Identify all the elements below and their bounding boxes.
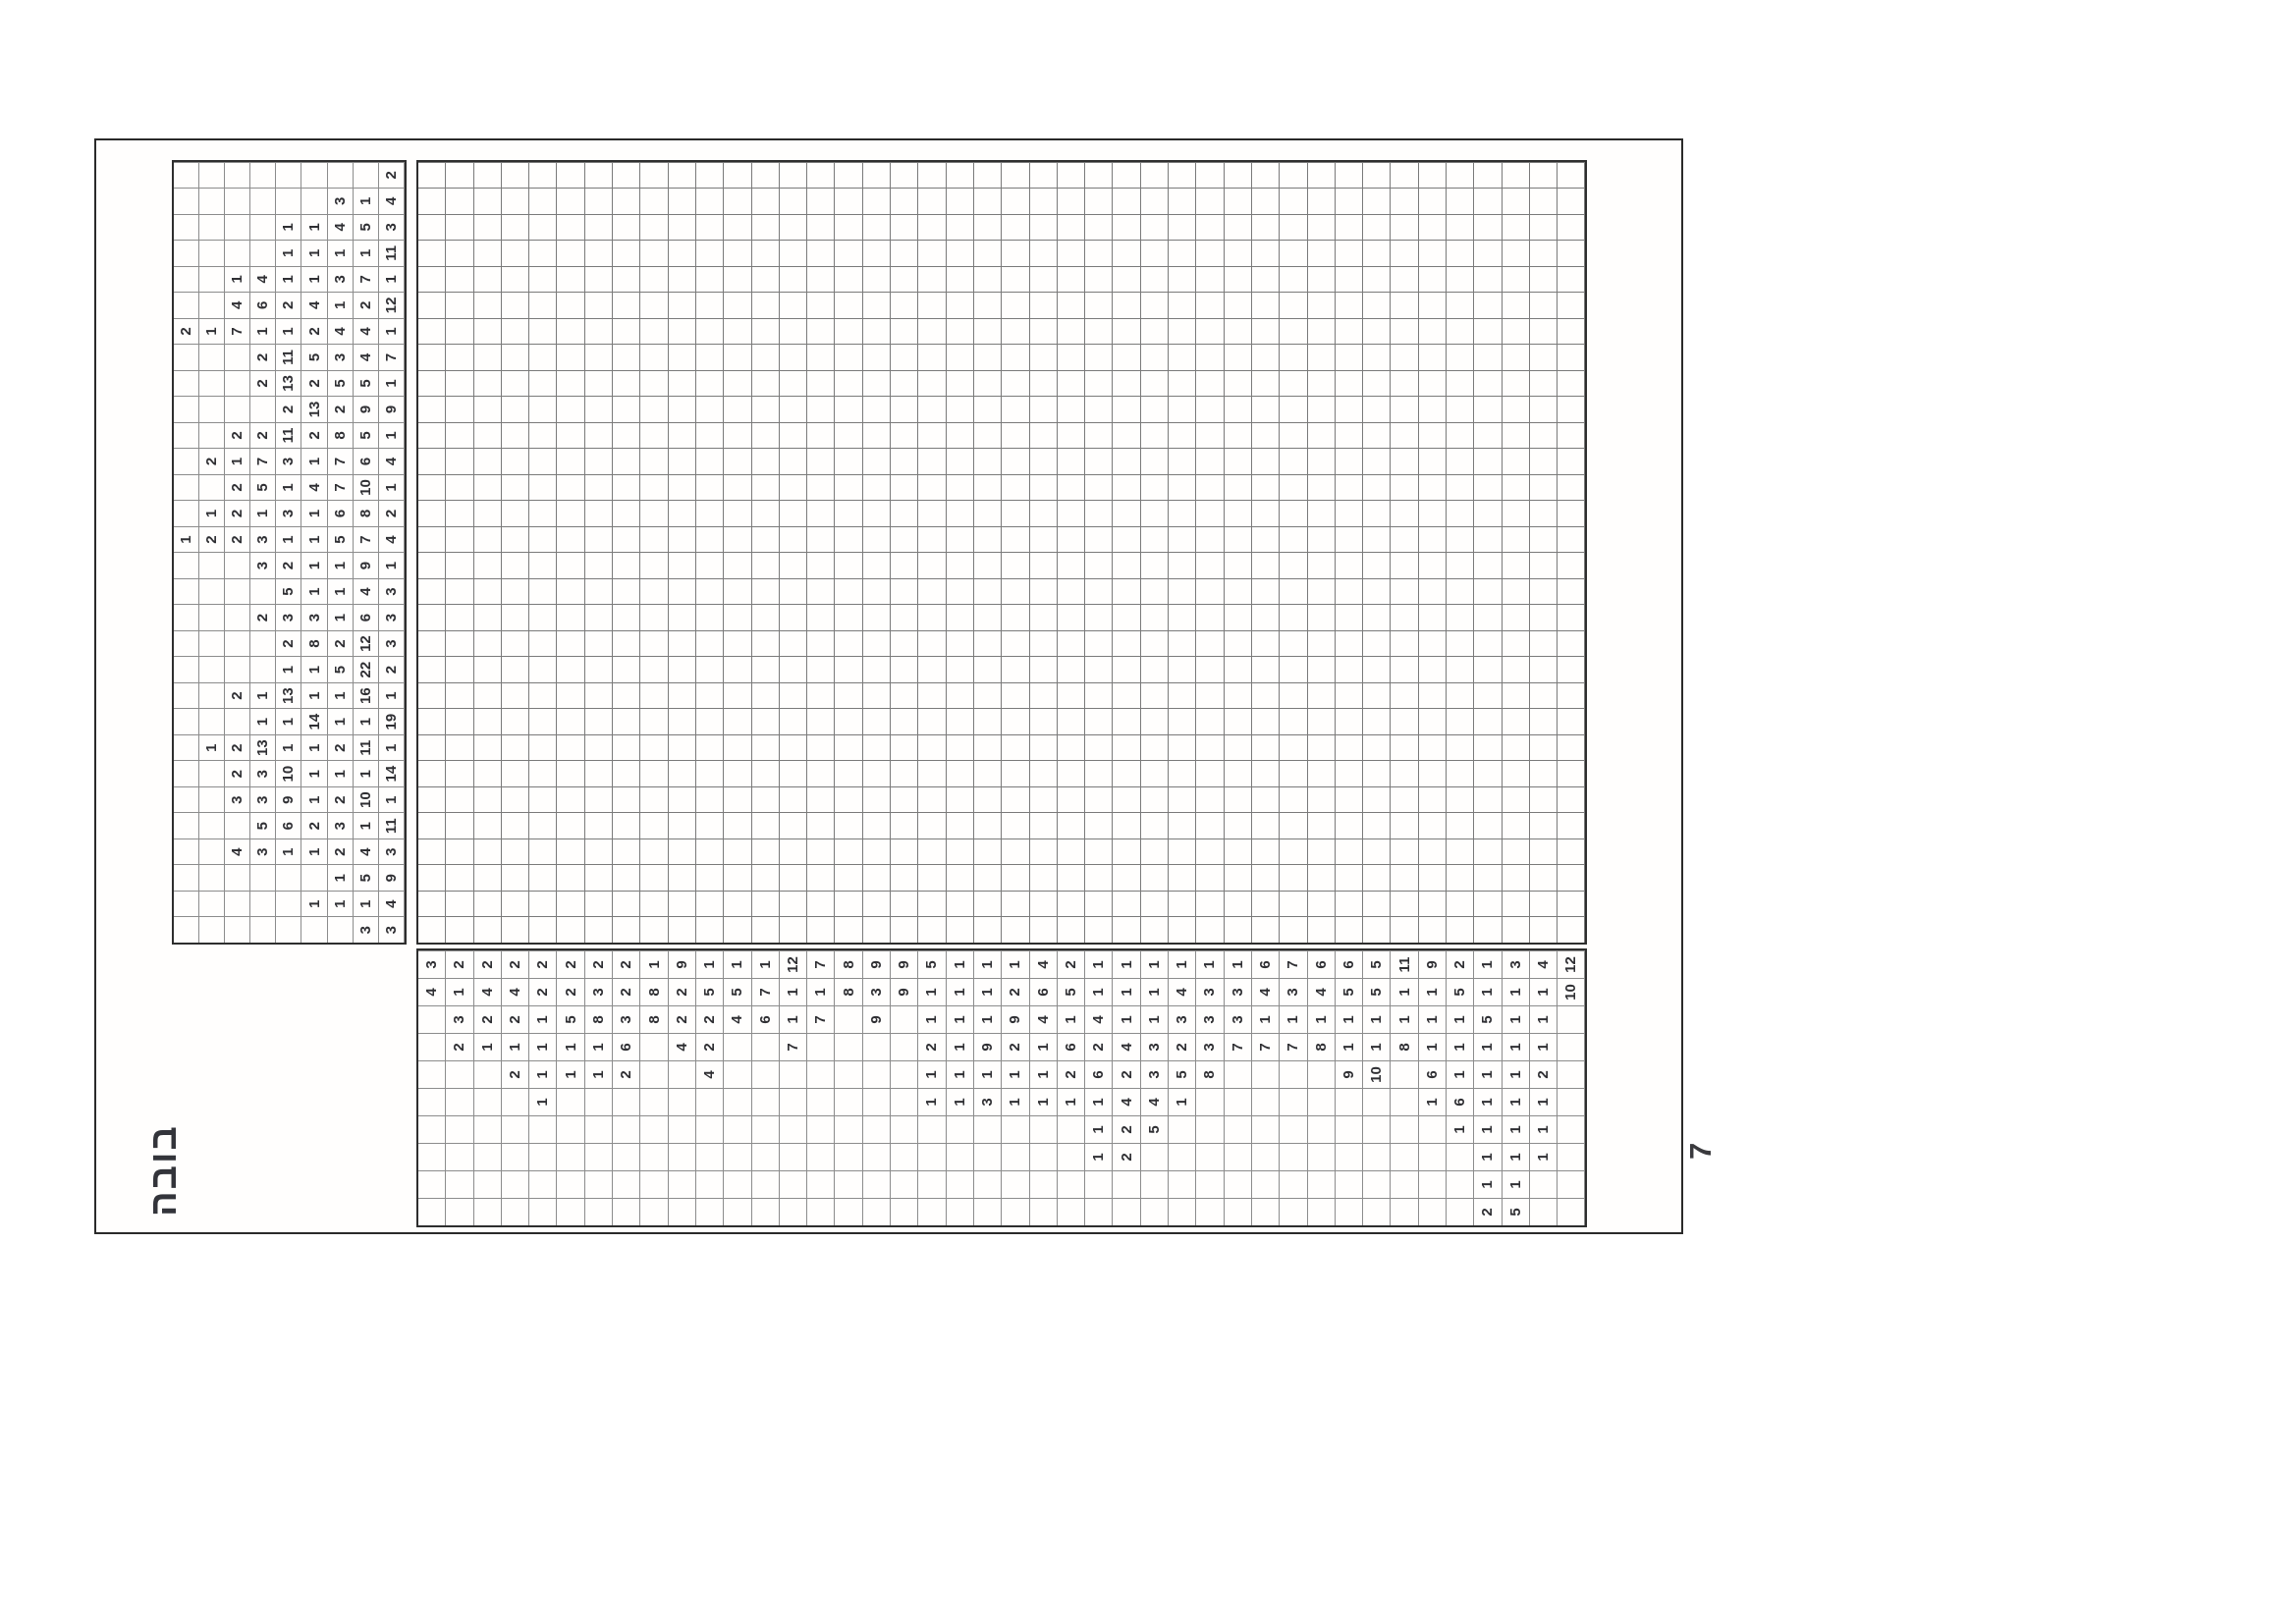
grid-cell[interactable] xyxy=(974,214,1002,241)
grid-cell[interactable] xyxy=(557,891,584,917)
grid-cell[interactable] xyxy=(502,734,529,761)
grid-cell[interactable] xyxy=(1308,839,1336,865)
grid-cell[interactable] xyxy=(780,292,807,318)
grid-cell[interactable] xyxy=(752,578,780,605)
grid-cell[interactable] xyxy=(418,318,446,345)
grid-cell[interactable] xyxy=(918,240,946,266)
grid-cell[interactable] xyxy=(1058,786,1085,813)
grid-cell[interactable] xyxy=(696,656,724,682)
grid-cell[interactable] xyxy=(1225,500,1252,526)
grid-cell[interactable] xyxy=(1085,240,1113,266)
grid-cell[interactable] xyxy=(891,318,918,345)
grid-cell[interactable] xyxy=(724,682,751,709)
grid-cell[interactable] xyxy=(807,656,835,682)
grid-cell[interactable] xyxy=(1280,370,1307,397)
grid-cell[interactable] xyxy=(863,370,891,397)
grid-cell[interactable] xyxy=(918,656,946,682)
grid-cell[interactable] xyxy=(974,839,1002,865)
grid-cell[interactable] xyxy=(446,474,473,501)
grid-cell[interactable] xyxy=(974,422,1002,449)
grid-cell[interactable] xyxy=(1280,786,1307,813)
grid-cell[interactable] xyxy=(1419,448,1447,474)
grid-cell[interactable] xyxy=(640,891,668,917)
grid-cell[interactable] xyxy=(1002,552,1029,578)
grid-cell[interactable] xyxy=(529,240,557,266)
grid-cell[interactable] xyxy=(1391,891,1418,917)
grid-cell[interactable] xyxy=(918,292,946,318)
grid-cell[interactable] xyxy=(557,864,584,891)
grid-cell[interactable] xyxy=(1085,656,1113,682)
grid-cell[interactable] xyxy=(1308,292,1336,318)
grid-cell[interactable] xyxy=(1058,240,1085,266)
grid-cell[interactable] xyxy=(1280,812,1307,839)
grid-cell[interactable] xyxy=(613,864,640,891)
grid-cell[interactable] xyxy=(585,396,613,422)
grid-cell[interactable] xyxy=(1113,812,1140,839)
grid-cell[interactable] xyxy=(1391,839,1418,865)
grid-cell[interactable] xyxy=(1530,552,1558,578)
grid-cell[interactable] xyxy=(585,448,613,474)
grid-cell[interactable] xyxy=(529,682,557,709)
grid-cell[interactable] xyxy=(1419,786,1447,813)
grid-cell[interactable] xyxy=(529,188,557,214)
grid-cell[interactable] xyxy=(502,812,529,839)
grid-cell[interactable] xyxy=(974,916,1002,943)
grid-cell[interactable] xyxy=(1169,552,1196,578)
grid-cell[interactable] xyxy=(1225,734,1252,761)
grid-cell[interactable] xyxy=(1113,891,1140,917)
grid-cell[interactable] xyxy=(1196,188,1224,214)
grid-cell[interactable] xyxy=(724,839,751,865)
grid-cell[interactable] xyxy=(974,292,1002,318)
grid-cell[interactable] xyxy=(1474,266,1502,293)
grid-cell[interactable] xyxy=(1113,864,1140,891)
grid-cell[interactable] xyxy=(1002,604,1029,630)
grid-cell[interactable] xyxy=(1336,396,1363,422)
grid-cell[interactable] xyxy=(752,396,780,422)
grid-cell[interactable] xyxy=(947,708,974,734)
grid-cell[interactable] xyxy=(1530,214,1558,241)
grid-cell[interactable] xyxy=(1196,786,1224,813)
grid-cell[interactable] xyxy=(1474,422,1502,449)
grid-cell[interactable] xyxy=(1196,760,1224,786)
grid-cell[interactable] xyxy=(1252,734,1280,761)
grid-cell[interactable] xyxy=(446,370,473,397)
grid-cell[interactable] xyxy=(1113,214,1140,241)
grid-cell[interactable] xyxy=(1225,839,1252,865)
grid-cell[interactable] xyxy=(780,448,807,474)
grid-cell[interactable] xyxy=(1030,292,1058,318)
grid-cell[interactable] xyxy=(1530,500,1558,526)
grid-cell[interactable] xyxy=(696,214,724,241)
grid-cell[interactable] xyxy=(1308,162,1336,189)
grid-cell[interactable] xyxy=(1447,240,1474,266)
grid-cell[interactable] xyxy=(891,760,918,786)
grid-cell[interactable] xyxy=(1085,318,1113,345)
grid-cell[interactable] xyxy=(780,734,807,761)
grid-cell[interactable] xyxy=(418,396,446,422)
grid-cell[interactable] xyxy=(640,682,668,709)
grid-cell[interactable] xyxy=(724,760,751,786)
grid-cell[interactable] xyxy=(1447,604,1474,630)
grid-cell[interactable] xyxy=(1391,448,1418,474)
grid-cell[interactable] xyxy=(557,839,584,865)
grid-cell[interactable] xyxy=(1225,578,1252,605)
grid-cell[interactable] xyxy=(1391,188,1418,214)
grid-cell[interactable] xyxy=(1530,708,1558,734)
grid-cell[interactable] xyxy=(585,552,613,578)
grid-cell[interactable] xyxy=(918,500,946,526)
grid-cell[interactable] xyxy=(1225,370,1252,397)
grid-cell[interactable] xyxy=(474,188,502,214)
grid-cell[interactable] xyxy=(446,162,473,189)
grid-cell[interactable] xyxy=(947,292,974,318)
grid-cell[interactable] xyxy=(557,188,584,214)
grid-cell[interactable] xyxy=(1225,474,1252,501)
grid-cell[interactable] xyxy=(669,396,696,422)
grid-cell[interactable] xyxy=(1419,916,1447,943)
grid-cell[interactable] xyxy=(863,656,891,682)
grid-cell[interactable] xyxy=(807,786,835,813)
grid-cell[interactable] xyxy=(1447,448,1474,474)
grid-cell[interactable] xyxy=(835,839,862,865)
grid-cell[interactable] xyxy=(1391,214,1418,241)
grid-cell[interactable] xyxy=(418,682,446,709)
grid-cell[interactable] xyxy=(1030,864,1058,891)
grid-cell[interactable] xyxy=(640,760,668,786)
grid-cell[interactable] xyxy=(1447,266,1474,293)
grid-cell[interactable] xyxy=(891,604,918,630)
grid-cell[interactable] xyxy=(418,500,446,526)
grid-cell[interactable] xyxy=(1252,812,1280,839)
grid-cell[interactable] xyxy=(1530,448,1558,474)
grid-cell[interactable] xyxy=(807,500,835,526)
grid-cell[interactable] xyxy=(1474,448,1502,474)
grid-cell[interactable] xyxy=(891,708,918,734)
grid-cell[interactable] xyxy=(807,734,835,761)
grid-cell[interactable] xyxy=(418,474,446,501)
grid-cell[interactable] xyxy=(696,266,724,293)
grid-cell[interactable] xyxy=(752,266,780,293)
grid-cell[interactable] xyxy=(1169,344,1196,370)
grid-cell[interactable] xyxy=(1141,891,1169,917)
grid-cell[interactable] xyxy=(1308,552,1336,578)
grid-cell[interactable] xyxy=(1085,422,1113,449)
grid-cell[interactable] xyxy=(1058,682,1085,709)
grid-cell[interactable] xyxy=(1391,422,1418,449)
grid-cell[interactable] xyxy=(918,734,946,761)
grid-cell[interactable] xyxy=(669,526,696,553)
grid-cell[interactable] xyxy=(1196,578,1224,605)
grid-cell[interactable] xyxy=(752,839,780,865)
grid-cell[interactable] xyxy=(1558,734,1585,761)
grid-cell[interactable] xyxy=(807,266,835,293)
grid-cell[interactable] xyxy=(696,916,724,943)
grid-cell[interactable] xyxy=(835,734,862,761)
grid-cell[interactable] xyxy=(585,422,613,449)
grid-cell[interactable] xyxy=(1530,240,1558,266)
grid-cell[interactable] xyxy=(807,812,835,839)
grid-cell[interactable] xyxy=(947,552,974,578)
grid-cell[interactable] xyxy=(1447,630,1474,657)
grid-cell[interactable] xyxy=(1530,474,1558,501)
grid-cell[interactable] xyxy=(947,396,974,422)
grid-cell[interactable] xyxy=(1558,656,1585,682)
grid-cell[interactable] xyxy=(1336,370,1363,397)
grid-cell[interactable] xyxy=(1530,370,1558,397)
grid-cell[interactable] xyxy=(529,292,557,318)
grid-cell[interactable] xyxy=(1058,708,1085,734)
grid-cell[interactable] xyxy=(502,448,529,474)
grid-cell[interactable] xyxy=(1225,864,1252,891)
grid-cell[interactable] xyxy=(1530,526,1558,553)
grid-cell[interactable] xyxy=(529,162,557,189)
grid-cell[interactable] xyxy=(1252,682,1280,709)
grid-cell[interactable] xyxy=(1391,500,1418,526)
grid-cell[interactable] xyxy=(557,292,584,318)
grid-cell[interactable] xyxy=(947,214,974,241)
grid-cell[interactable] xyxy=(1085,578,1113,605)
grid-cell[interactable] xyxy=(780,682,807,709)
grid-cell[interactable] xyxy=(1252,708,1280,734)
grid-cell[interactable] xyxy=(1419,864,1447,891)
grid-cell[interactable] xyxy=(418,708,446,734)
grid-cell[interactable] xyxy=(1113,266,1140,293)
grid-cell[interactable] xyxy=(1252,448,1280,474)
grid-cell[interactable] xyxy=(1474,734,1502,761)
grid-cell[interactable] xyxy=(1030,422,1058,449)
grid-cell[interactable] xyxy=(918,188,946,214)
grid-cell[interactable] xyxy=(1030,318,1058,345)
grid-cell[interactable] xyxy=(780,604,807,630)
grid-cell[interactable] xyxy=(640,448,668,474)
grid-cell[interactable] xyxy=(1280,526,1307,553)
grid-cell[interactable] xyxy=(1002,318,1029,345)
grid-cell[interactable] xyxy=(974,682,1002,709)
grid-cell[interactable] xyxy=(974,734,1002,761)
grid-cell[interactable] xyxy=(1391,604,1418,630)
grid-cell[interactable] xyxy=(1085,292,1113,318)
grid-cell[interactable] xyxy=(1058,916,1085,943)
grid-cell[interactable] xyxy=(446,500,473,526)
grid-cell[interactable] xyxy=(613,500,640,526)
grid-cell[interactable] xyxy=(696,630,724,657)
grid-cell[interactable] xyxy=(1113,916,1140,943)
grid-cell[interactable] xyxy=(418,526,446,553)
grid-cell[interactable] xyxy=(640,786,668,813)
grid-cell[interactable] xyxy=(1391,344,1418,370)
grid-cell[interactable] xyxy=(418,864,446,891)
grid-cell[interactable] xyxy=(1308,864,1336,891)
grid-cell[interactable] xyxy=(669,552,696,578)
grid-cell[interactable] xyxy=(974,318,1002,345)
grid-cell[interactable] xyxy=(974,578,1002,605)
grid-cell[interactable] xyxy=(529,526,557,553)
grid-cell[interactable] xyxy=(502,370,529,397)
grid-cell[interactable] xyxy=(1252,891,1280,917)
grid-cell[interactable] xyxy=(1558,370,1585,397)
grid-cell[interactable] xyxy=(418,891,446,917)
grid-cell[interactable] xyxy=(1252,656,1280,682)
grid-cell[interactable] xyxy=(807,708,835,734)
grid-cell[interactable] xyxy=(1030,916,1058,943)
grid-cell[interactable] xyxy=(613,578,640,605)
grid-cell[interactable] xyxy=(1447,500,1474,526)
grid-cell[interactable] xyxy=(1530,162,1558,189)
grid-cell[interactable] xyxy=(418,266,446,293)
grid-cell[interactable] xyxy=(1530,891,1558,917)
grid-cell[interactable] xyxy=(891,500,918,526)
grid-cell[interactable] xyxy=(557,786,584,813)
grid-cell[interactable] xyxy=(752,370,780,397)
grid-cell[interactable] xyxy=(669,864,696,891)
grid-cell[interactable] xyxy=(669,656,696,682)
grid-cell[interactable] xyxy=(1030,682,1058,709)
grid-cell[interactable] xyxy=(807,891,835,917)
grid-cell[interactable] xyxy=(1363,656,1391,682)
grid-cell[interactable] xyxy=(502,188,529,214)
grid-cell[interactable] xyxy=(1363,864,1391,891)
grid-cell[interactable] xyxy=(807,162,835,189)
grid-cell[interactable] xyxy=(1503,188,1530,214)
grid-cell[interactable] xyxy=(807,839,835,865)
grid-cell[interactable] xyxy=(1141,474,1169,501)
grid-cell[interactable] xyxy=(1391,916,1418,943)
grid-cell[interactable] xyxy=(1280,916,1307,943)
grid-cell[interactable] xyxy=(502,682,529,709)
grid-cell[interactable] xyxy=(1474,786,1502,813)
grid-cell[interactable] xyxy=(835,552,862,578)
grid-cell[interactable] xyxy=(891,214,918,241)
grid-cell[interactable] xyxy=(1225,760,1252,786)
grid-cell[interactable] xyxy=(585,656,613,682)
grid-cell[interactable] xyxy=(669,162,696,189)
grid-cell[interactable] xyxy=(1447,812,1474,839)
grid-cell[interactable] xyxy=(1419,344,1447,370)
grid-cell[interactable] xyxy=(1419,526,1447,553)
grid-cell[interactable] xyxy=(1308,422,1336,449)
grid-cell[interactable] xyxy=(529,839,557,865)
grid-cell[interactable] xyxy=(1530,630,1558,657)
grid-cell[interactable] xyxy=(502,162,529,189)
grid-cell[interactable] xyxy=(1030,344,1058,370)
grid-cell[interactable] xyxy=(418,630,446,657)
grid-cell[interactable] xyxy=(947,864,974,891)
grid-cell[interactable] xyxy=(835,344,862,370)
grid-cell[interactable] xyxy=(446,552,473,578)
grid-cell[interactable] xyxy=(724,500,751,526)
grid-cell[interactable] xyxy=(1308,214,1336,241)
grid-cell[interactable] xyxy=(947,786,974,813)
grid-cell[interactable] xyxy=(1085,448,1113,474)
grid-cell[interactable] xyxy=(1058,266,1085,293)
grid-cell[interactable] xyxy=(529,656,557,682)
grid-cell[interactable] xyxy=(1252,630,1280,657)
grid-cell[interactable] xyxy=(640,474,668,501)
grid-cell[interactable] xyxy=(1447,656,1474,682)
grid-cell[interactable] xyxy=(669,370,696,397)
grid-cell[interactable] xyxy=(1058,839,1085,865)
grid-cell[interactable] xyxy=(585,188,613,214)
grid-cell[interactable] xyxy=(585,474,613,501)
grid-cell[interactable] xyxy=(640,214,668,241)
grid-cell[interactable] xyxy=(1141,760,1169,786)
grid-cell[interactable] xyxy=(835,474,862,501)
grid-cell[interactable] xyxy=(1141,864,1169,891)
grid-cell[interactable] xyxy=(1280,344,1307,370)
grid-cell[interactable] xyxy=(557,474,584,501)
grid-cell[interactable] xyxy=(807,578,835,605)
grid-cell[interactable] xyxy=(1085,500,1113,526)
grid-cell[interactable] xyxy=(1058,734,1085,761)
grid-cell[interactable] xyxy=(1141,916,1169,943)
grid-cell[interactable] xyxy=(891,578,918,605)
grid-cell[interactable] xyxy=(529,422,557,449)
grid-cell[interactable] xyxy=(780,526,807,553)
grid-cell[interactable] xyxy=(863,916,891,943)
grid-cell[interactable] xyxy=(1336,839,1363,865)
grid-cell[interactable] xyxy=(1002,864,1029,891)
grid-cell[interactable] xyxy=(1141,786,1169,813)
grid-cell[interactable] xyxy=(585,578,613,605)
grid-cell[interactable] xyxy=(1141,370,1169,397)
grid-cell[interactable] xyxy=(863,266,891,293)
grid-cell[interactable] xyxy=(1252,396,1280,422)
grid-cell[interactable] xyxy=(1391,812,1418,839)
grid-cell[interactable] xyxy=(863,891,891,917)
grid-cell[interactable] xyxy=(529,891,557,917)
grid-cell[interactable] xyxy=(724,656,751,682)
grid-cell[interactable] xyxy=(891,552,918,578)
grid-cell[interactable] xyxy=(835,630,862,657)
grid-cell[interactable] xyxy=(724,604,751,630)
grid-cell[interactable] xyxy=(974,500,1002,526)
grid-cell[interactable] xyxy=(1085,812,1113,839)
grid-cell[interactable] xyxy=(446,786,473,813)
grid-cell[interactable] xyxy=(1419,891,1447,917)
grid-cell[interactable] xyxy=(1058,292,1085,318)
grid-cell[interactable] xyxy=(1558,708,1585,734)
grid-cell[interactable] xyxy=(1391,786,1418,813)
grid-cell[interactable] xyxy=(1558,891,1585,917)
grid-cell[interactable] xyxy=(1447,682,1474,709)
grid-cell[interactable] xyxy=(1225,318,1252,345)
grid-cell[interactable] xyxy=(585,891,613,917)
grid-cell[interactable] xyxy=(585,266,613,293)
grid-cell[interactable] xyxy=(474,812,502,839)
grid-cell[interactable] xyxy=(1530,396,1558,422)
grid-cell[interactable] xyxy=(835,266,862,293)
grid-cell[interactable] xyxy=(1141,344,1169,370)
grid-cell[interactable] xyxy=(1558,812,1585,839)
grid-cell[interactable] xyxy=(780,500,807,526)
grid-cell[interactable] xyxy=(669,839,696,865)
grid-cell[interactable] xyxy=(502,266,529,293)
grid-cell[interactable] xyxy=(835,448,862,474)
grid-cell[interactable] xyxy=(1085,682,1113,709)
grid-cell[interactable] xyxy=(613,891,640,917)
grid-cell[interactable] xyxy=(1002,630,1029,657)
grid-cell[interactable] xyxy=(640,552,668,578)
grid-cell[interactable] xyxy=(974,656,1002,682)
grid-cell[interactable] xyxy=(1113,786,1140,813)
grid-cell[interactable] xyxy=(807,864,835,891)
grid-cell[interactable] xyxy=(891,786,918,813)
grid-cell[interactable] xyxy=(1058,396,1085,422)
grid-cell[interactable] xyxy=(1002,240,1029,266)
grid-cell[interactable] xyxy=(1280,604,1307,630)
grid-cell[interactable] xyxy=(640,318,668,345)
